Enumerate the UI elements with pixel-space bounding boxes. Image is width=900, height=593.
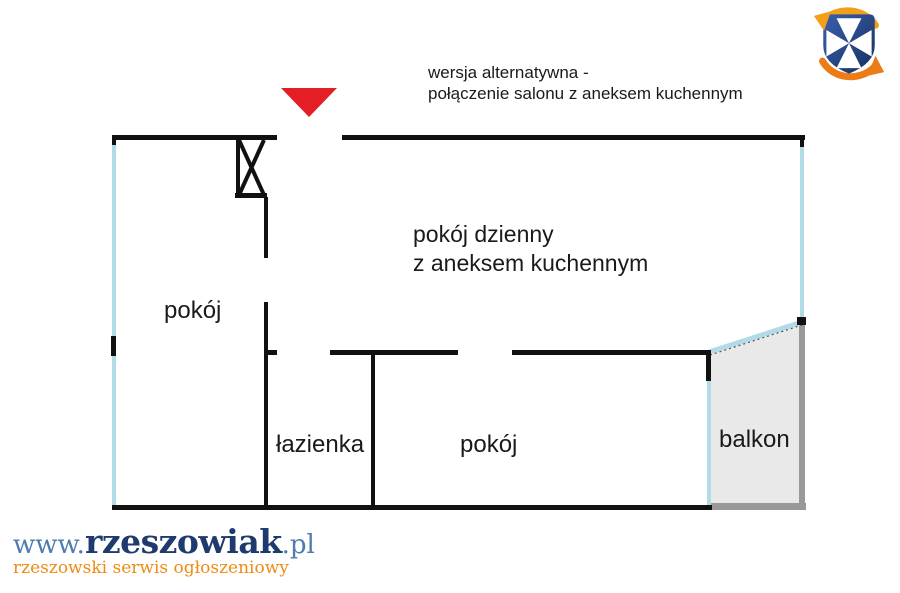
site-url-www: www.	[13, 530, 85, 560]
site-tagline: rzeszowski serwis ogłoszeniowy	[13, 558, 315, 578]
wall-top-left-segment	[112, 135, 277, 140]
wall-left-top-tick	[112, 139, 116, 145]
wall-right-top-tick	[800, 139, 804, 147]
shaft-left-edge	[236, 138, 240, 197]
site-url-tld: .pl	[282, 530, 315, 560]
room-label-living-line1: pokój dzienny	[413, 220, 648, 249]
site-url-name: rzeszowiak	[85, 522, 282, 561]
balcony-floor	[710, 323, 801, 507]
room-label-living-line2: z aneksem kuchennym	[413, 249, 648, 278]
room-label-living: pokój dzienny z aneksem kuchennym	[413, 220, 648, 278]
wall-balcony-door-stub	[706, 350, 711, 381]
room-label-left: pokój	[164, 297, 221, 325]
plan-annotation: wersja alternatywna - połączenie salonu …	[428, 62, 743, 104]
balcony-railing-bottom	[710, 503, 806, 510]
room-label-bathroom: łazienka	[276, 431, 364, 459]
vent-shaft-icon	[235, 138, 267, 198]
wall-interior-horizontal-stub	[264, 350, 277, 355]
wall-interior-horizontal-right	[512, 350, 710, 355]
floorplan-page: wersja alternatywna - połączenie salonu …	[0, 0, 900, 593]
wall-bottom	[112, 505, 712, 510]
wall-balcony-corner-tick	[797, 317, 806, 325]
room-label-balcony: balkon	[719, 426, 790, 454]
wall-left-mid-tick	[111, 336, 116, 356]
window-right	[800, 146, 804, 318]
annotation-line1: wersja alternatywna -	[428, 62, 743, 83]
site-logo: www.rzeszowiak.pl rzeszowski serwis ogło…	[13, 522, 315, 578]
site-url: www.rzeszowiak.pl	[13, 522, 315, 561]
entrance-arrow-icon	[281, 88, 337, 117]
window-left	[112, 143, 116, 505]
annotation-line2: połączenie salonu z aneksem kuchennym	[428, 83, 743, 104]
wall-interior-horizontal-mid	[330, 350, 458, 355]
room-label-bottom: pokój	[460, 431, 517, 459]
balcony-door-window	[707, 381, 711, 505]
rzeszow-crest-icon	[810, 4, 888, 84]
balcony-area	[709, 322, 806, 510]
wall-bathroom-right	[371, 350, 375, 508]
wall-leftroom-right-lower	[264, 302, 268, 508]
wall-top-right-segment	[342, 135, 805, 140]
balcony-railing-right	[799, 323, 805, 508]
wall-leftroom-right-upper	[264, 197, 268, 258]
